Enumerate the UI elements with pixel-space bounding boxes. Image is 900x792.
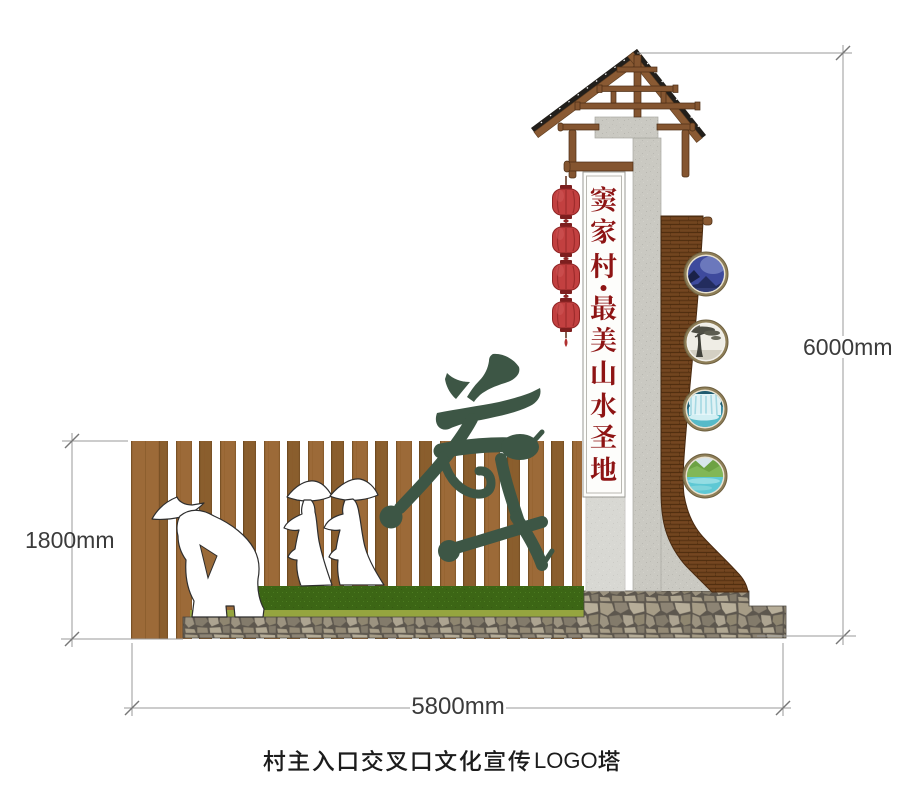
svg-text:1800mm: 1800mm bbox=[25, 527, 114, 553]
svg-text:LOGO: LOGO bbox=[534, 748, 598, 773]
svg-text:6000mm: 6000mm bbox=[803, 334, 892, 360]
svg-text:5800mm: 5800mm bbox=[411, 693, 504, 720]
